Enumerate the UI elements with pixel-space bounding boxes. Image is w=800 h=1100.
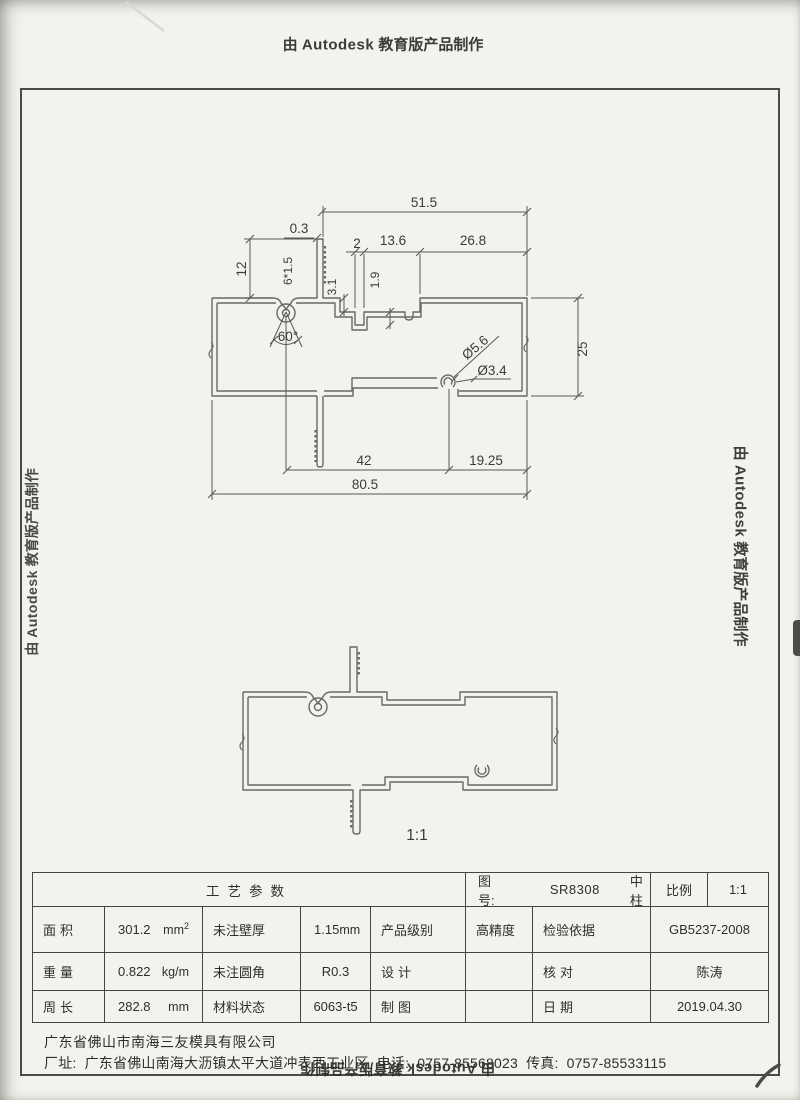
dim-42: 42 — [356, 453, 371, 468]
weight-value: 0.822 — [118, 964, 151, 979]
area-value: 301.2 — [118, 922, 151, 937]
weight-unit: kg/m — [162, 965, 189, 979]
cell-process-params-header: 工艺参数 — [33, 873, 466, 907]
dim-12: 12 — [234, 261, 249, 276]
scan-edge-mark — [793, 620, 800, 656]
cell-product-grade-label: 产品级别 — [371, 907, 466, 953]
dim-60deg: 60° — [278, 329, 298, 344]
credit-brand: Autodesk — [406, 1060, 476, 1076]
cell-fillet-value: R0.3 — [301, 953, 371, 991]
dim-6x1-5: 6*1.5 — [281, 257, 295, 285]
cell-drawing-number: 图号: SR8308 中柱 — [466, 873, 651, 907]
cell-inspection-standard-value: GB5237-2008 — [651, 907, 769, 953]
cell-scale-label: 比例 — [651, 873, 708, 907]
cell-check-value: 陈涛 — [651, 953, 769, 991]
profile-1to1-view — [240, 647, 558, 834]
title-block-table: 工艺参数 图号: SR8308 中柱 比例 1:1 面积 301.2 mm2 未… — [32, 872, 769, 1023]
cell-area-label: 面积 — [33, 907, 105, 953]
dim-80-5: 80.5 — [352, 477, 378, 492]
dim-0-3: 0.3 — [290, 221, 309, 236]
dim-25: 25 — [575, 341, 590, 356]
cell-design-value-empty — [466, 953, 533, 991]
perimeter-value: 282.8 — [118, 999, 151, 1014]
dim-19-25: 19.25 — [469, 453, 503, 468]
cell-perimeter-label: 周长 — [33, 991, 105, 1023]
cell-check-label: 核对 — [533, 953, 651, 991]
cell-material-state-label: 材料状态 — [203, 991, 301, 1023]
area-unit-text: mm — [163, 924, 184, 938]
cell-area-value: 301.2 mm2 — [105, 907, 203, 953]
area-unit-sup: 2 — [184, 921, 189, 931]
drawing-number-label: 图号: — [478, 873, 498, 907]
cell-date-label: 日期 — [533, 991, 651, 1023]
perimeter-unit: mm — [168, 1000, 189, 1014]
dim-13-6: 13.6 — [380, 233, 406, 248]
cell-product-grade-value: 高精度 — [466, 907, 533, 953]
drawing-number-value: SR8308 — [550, 882, 600, 897]
scale-1to1-label: 1:1 — [406, 827, 428, 844]
cell-scale-value: 1:1 — [708, 873, 769, 907]
fax-value: 0757-85533115 — [567, 1055, 667, 1071]
address-label: 厂址: — [44, 1055, 77, 1071]
dim-51-5: 51.5 — [411, 195, 437, 210]
wall-unit: mm — [339, 923, 360, 937]
fax-label: 传真: — [526, 1055, 559, 1071]
cell-weight-label: 重量 — [33, 953, 105, 991]
credit-prefix: 由 — [477, 1060, 496, 1076]
cell-fillet-label: 未注圆角 — [203, 953, 301, 991]
cell-draft-value-empty — [466, 991, 533, 1023]
cell-draft-label: 制图 — [371, 991, 466, 1023]
dim-dia-3-4: Ø3.4 — [477, 363, 507, 378]
dim-2: 2 — [353, 236, 361, 251]
cell-design-label: 设计 — [371, 953, 466, 991]
cell-weight-value: 0.822 kg/m — [105, 953, 203, 991]
cell-material-state-value: 6063-t5 — [301, 991, 371, 1023]
cell-wall-thickness-value: 1.15 mm — [301, 907, 371, 953]
scanned-drawing-page: 由 Autodesk 教育版产品制作 由 Autodesk 教育版产品制作 由 … — [0, 0, 800, 1100]
dimension-labels: 51.5 0.3 2 13.6 26.8 12 6*1.5 3.1 1.9 60… — [234, 195, 590, 492]
area-unit: mm2 — [163, 921, 189, 937]
cell-wall-thickness-label: 未注壁厚 — [203, 907, 301, 953]
autodesk-credit-bottom-flipped: 由 Autodesk 教育版产品制作 — [301, 1059, 495, 1080]
company-name: 广东省佛山市南海三友模具有限公司 — [44, 1032, 276, 1052]
dim-26-8: 26.8 — [460, 233, 486, 248]
cell-date-value: 2019.04.30 — [651, 991, 769, 1023]
part-name: 中柱 — [630, 873, 650, 907]
cell-perimeter-value: 282.8 mm — [105, 991, 203, 1023]
credit-suffix: 教育版产品制作 — [301, 1060, 407, 1076]
cell-inspection-standard-label: 检验依据 — [533, 907, 651, 953]
dim-1-9: 1.9 — [368, 271, 382, 288]
wall-value: 1.15 — [314, 922, 339, 937]
dim-3-1: 3.1 — [325, 278, 339, 295]
